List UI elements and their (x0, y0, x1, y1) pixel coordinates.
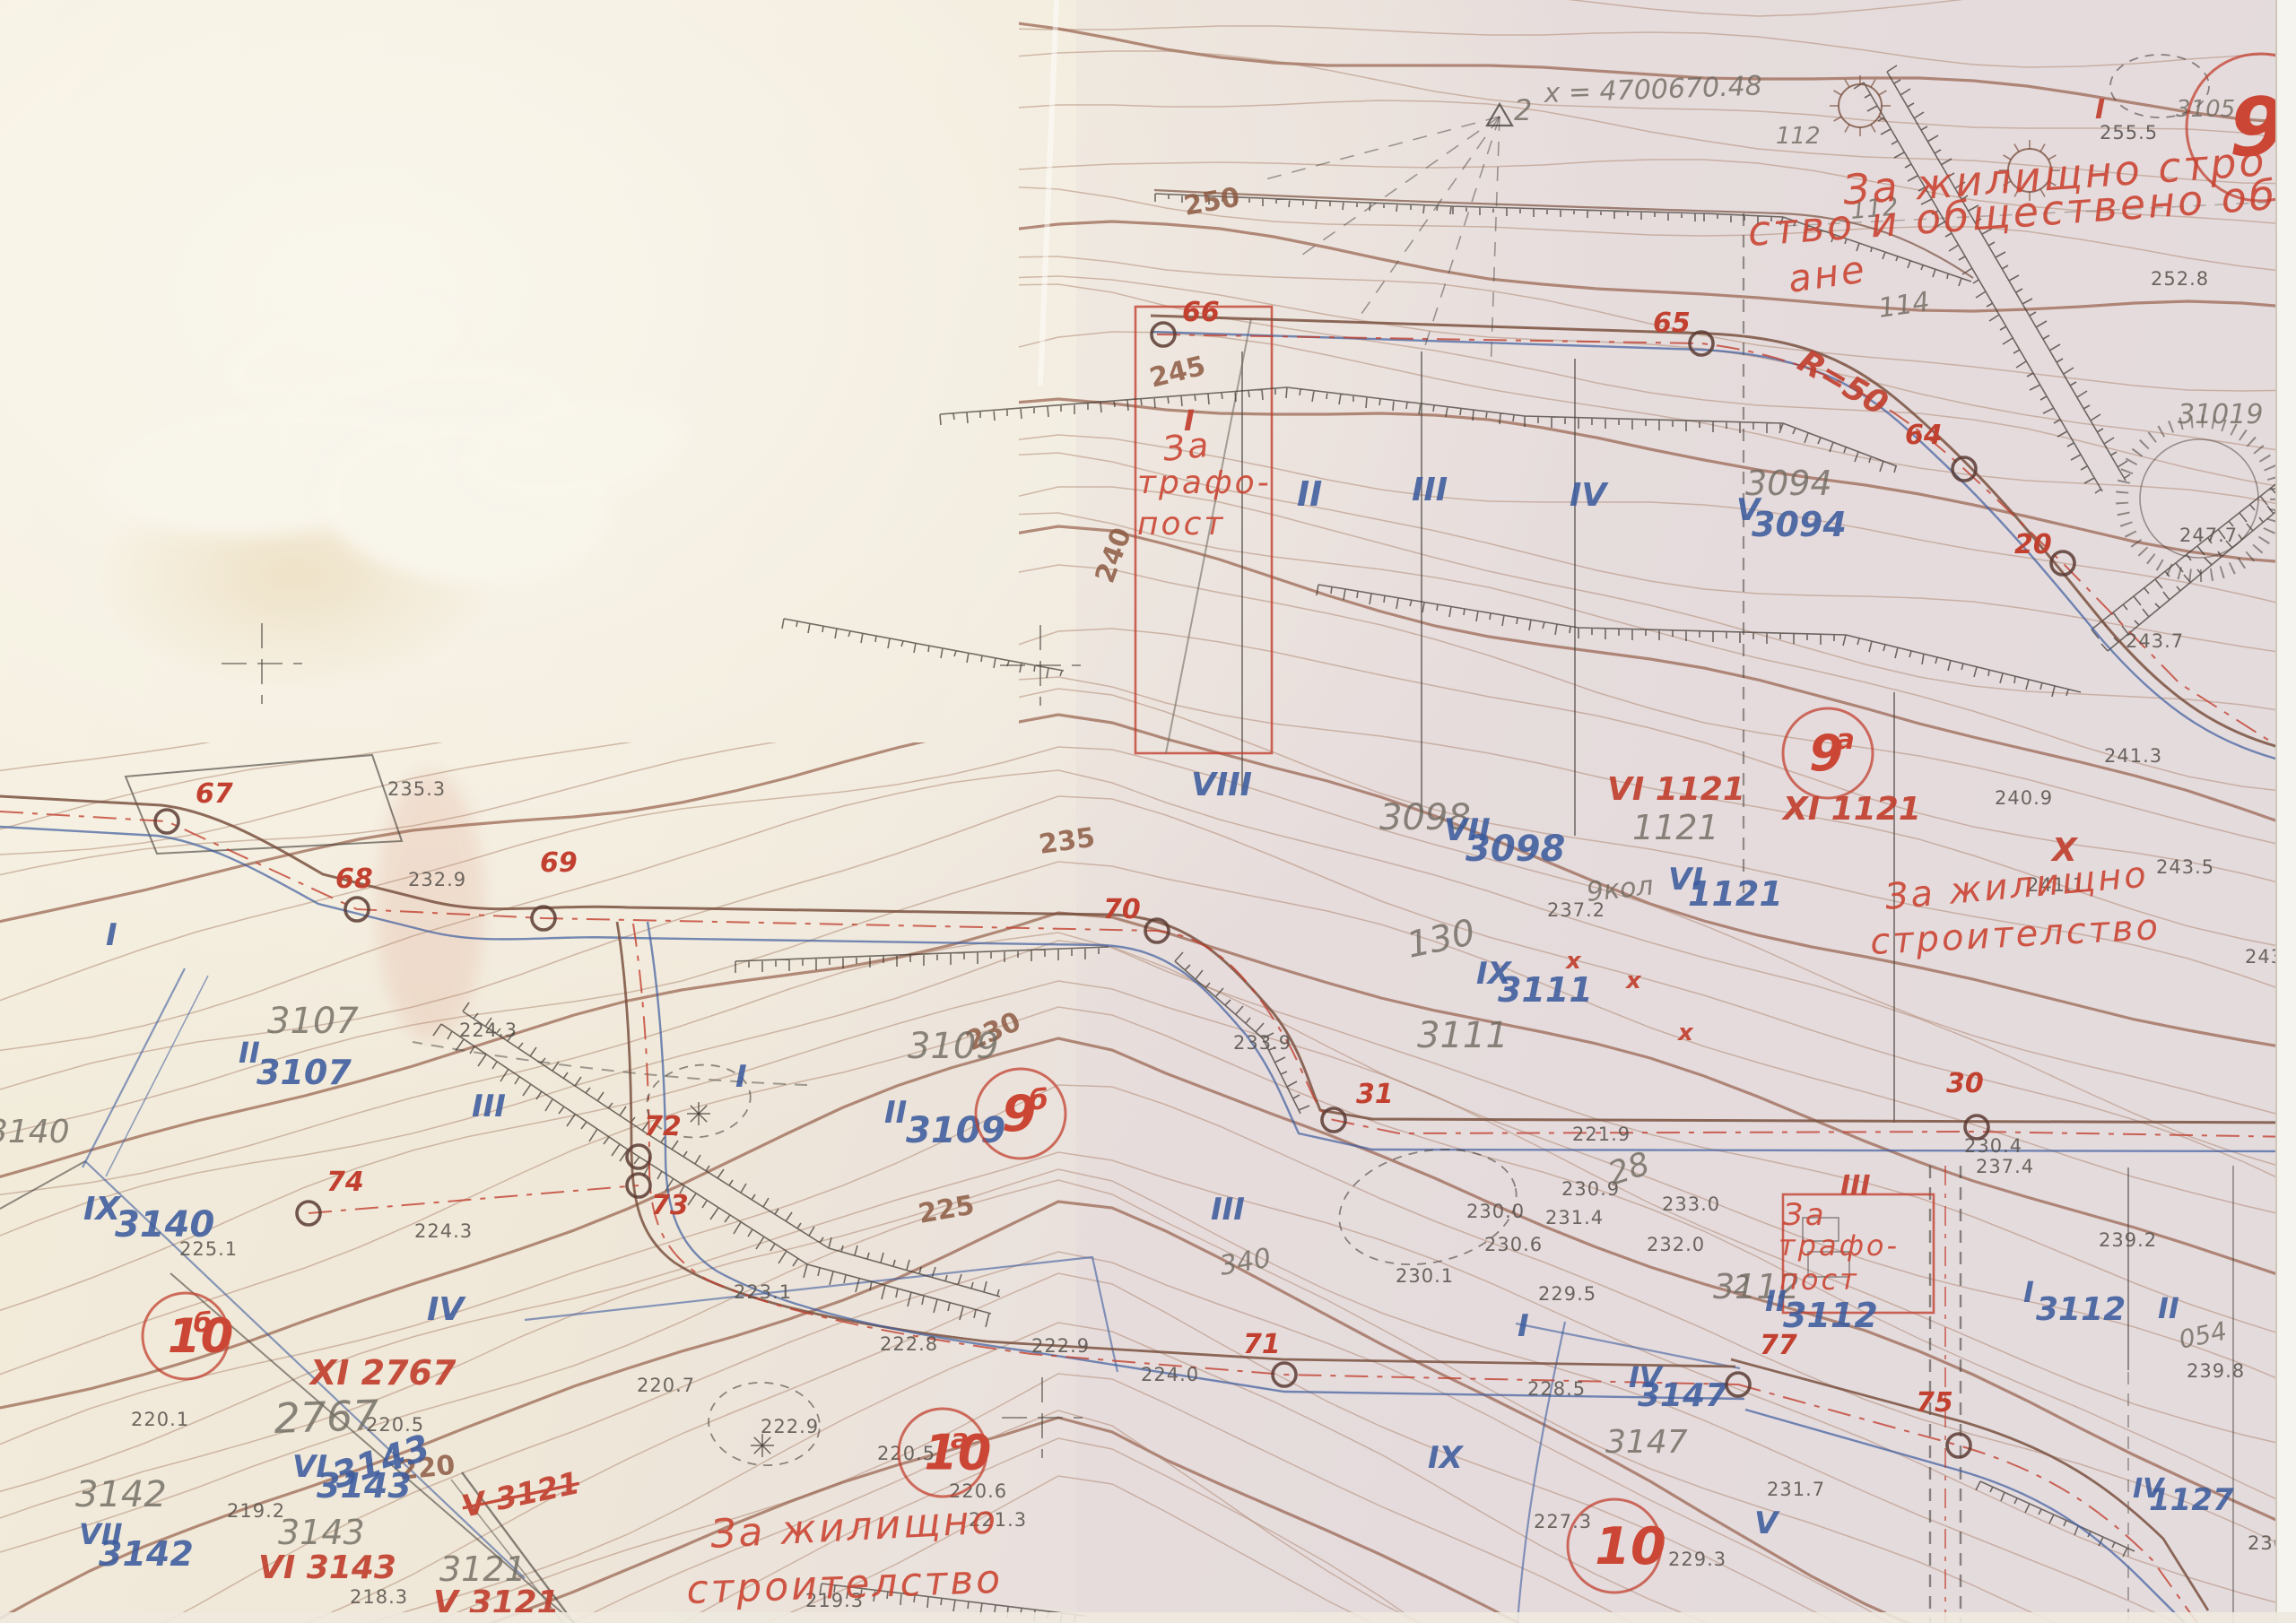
zone-number: 10 (1595, 1517, 1666, 1576)
red-annotation: VI 1121 (1607, 771, 1745, 808)
elevation-label: 235.3 (387, 778, 446, 800)
parcel-number-label: III (1412, 472, 1448, 508)
pencil-parcel-label: 3121 (439, 1549, 526, 1589)
zone-designation-text: трафо- (1137, 464, 1272, 501)
elevation-label: 220.7 (637, 1375, 695, 1396)
elevation-label: 222.8 (880, 1333, 938, 1355)
elevation-label: 224.3 (459, 1020, 517, 1041)
elevation-label: 255.5 (2100, 122, 2158, 143)
pencil-parcel-label: 3140 (0, 1114, 70, 1150)
parcel-number-label: 3111 (1498, 970, 1593, 1010)
survey-point-number: 71 (1243, 1329, 1281, 1360)
parcel-number-label: 3147 (1638, 1377, 1727, 1414)
red-annotation: x (1624, 968, 1642, 994)
parcel-number-label: IX (1428, 1440, 1465, 1476)
survey-point-number: 30 (1946, 1068, 1984, 1099)
parcel-number-label: 3112 (2036, 1291, 2126, 1328)
survey-point-number: 72 (644, 1111, 682, 1142)
zone-designation-text: За (1161, 425, 1213, 469)
red-annotation: XI 1121 (1781, 791, 1921, 828)
elevation-label: 241.3 (2104, 745, 2162, 767)
zone-designation-text: пост (1779, 1263, 1859, 1297)
red-annotation: x (1676, 1020, 1694, 1046)
elevation-label: 222.9 (761, 1416, 819, 1437)
parcel-number-label: 3140 (115, 1204, 214, 1245)
parcel-number-label: 3098 (1465, 829, 1565, 870)
elevation-label: 224.3 (414, 1220, 473, 1242)
parcel-number-label: IV (427, 1291, 466, 1328)
elevation-label: 237.4 (1976, 1156, 2034, 1177)
zone-letter: б (1029, 1084, 1048, 1116)
elevation-label: 219.2 (227, 1500, 285, 1522)
pencil-parcel-label: 112 (1776, 123, 1821, 150)
parcel-number-label: 1127 (2149, 1482, 2234, 1518)
parcel-number-label: VIII (1191, 767, 1252, 803)
pencil-parcel-label: 2767 (273, 1391, 379, 1443)
elevation-label: 230.0 (1466, 1201, 1525, 1222)
parcel-number-label: I (106, 917, 117, 953)
pencil-parcel-label: 3147 (1605, 1424, 1688, 1461)
pencil-parcel-label: 3143 (278, 1513, 365, 1552)
elevation-label: 252.8 (2151, 268, 2209, 290)
parcel-number-label: I (1518, 1308, 1529, 1344)
survey-point-number: 66 (1182, 297, 1220, 328)
pencil-parcel-label: 3111 (1417, 1015, 1509, 1056)
shrub-symbol (687, 1102, 710, 1125)
paper-edge-right (2276, 0, 2296, 1623)
elevation-label: 239.2 (2099, 1229, 2157, 1251)
parcel-number-label: 3142 (99, 1534, 194, 1574)
pencil-parcel-label: 1121 (1632, 808, 1719, 847)
pencil-parcel-label: 3105 (2176, 96, 2235, 123)
survey-point-number: 70 (1103, 894, 1141, 925)
zone-letter: б (194, 1307, 213, 1339)
parcel-number-label: 3109 (906, 1110, 1005, 1151)
elevation-label: 231.4 (1545, 1207, 1604, 1228)
pencil-parcel-label: 2 (1734, 1270, 1750, 1299)
survey-point-number: 73 (651, 1190, 689, 1221)
parcel-number-label: 3112 (1783, 1296, 1878, 1335)
survey-point-number: 77 (1760, 1330, 1797, 1361)
ink-smear (377, 771, 484, 1040)
scanned-cadastral-map: 235.3232.9224.3224.3225.1220.1220.5219.2… (0, 0, 2296, 1623)
red-annotation: I (2095, 94, 2105, 126)
paper-edge-bottom (0, 1612, 2296, 1623)
pencil-parcel-label: 3142 (75, 1474, 167, 1515)
red-annotation: x (1564, 948, 1582, 975)
zone-designation-text: пост (1137, 506, 1225, 542)
red-annotation: III (1840, 1170, 1871, 1202)
elevation-label: 218.3 (350, 1586, 408, 1608)
pencil-parcel-label: 2 (1514, 93, 1532, 127)
red-annotation: VI 3143 (258, 1549, 396, 1586)
elevation-label: 243.5 (2156, 856, 2214, 878)
pencil-parcel-label: 31019 (2178, 399, 2263, 430)
parcel-number-label: III (472, 1089, 506, 1124)
zone-designation-text: трафо- (1779, 1228, 1900, 1263)
elevation-label: 240.9 (1995, 787, 2053, 809)
red-annotation: XI 2767 (309, 1353, 457, 1393)
pencil-parcel-label: 3107 (267, 1001, 359, 1042)
elevation-label: 222.9 (1031, 1335, 1090, 1357)
elevation-label: 247.7 (2179, 525, 2238, 546)
elevation-label: 224.0 (1141, 1364, 1199, 1385)
elevation-label: 230.1 (1396, 1265, 1454, 1287)
survey-point-number: 75 (1916, 1387, 1953, 1419)
parcel-number-label: I (2023, 1275, 2034, 1309)
parcel-number-label: IV (1570, 477, 1609, 514)
elevation-label: 227.3 (1534, 1511, 1592, 1532)
zone-designation-text: За (1783, 1197, 1827, 1233)
elevation-label: 232.9 (408, 869, 466, 890)
elevation-label: 229.5 (1538, 1283, 1596, 1305)
elevation-label: 243.7 (2126, 630, 2184, 652)
parcel-number-label: 3107 (257, 1053, 352, 1092)
map-svg: 235.3232.9224.3224.3225.1220.1220.5219.2… (0, 0, 2296, 1623)
parcel-number-label: II (884, 1095, 907, 1131)
parcel-number-label: V (1754, 1506, 1780, 1541)
elevation-label: 223.1 (734, 1281, 792, 1303)
elevation-label: 229.3 (1668, 1549, 1726, 1570)
survey-point-number: 31 (1356, 1079, 1394, 1110)
elevation-label: 228.5 (1527, 1378, 1586, 1400)
elevation-label: 230.6 (1484, 1234, 1543, 1255)
zone-letter: а (1836, 724, 1855, 756)
elevation-label: 231.7 (1767, 1479, 1825, 1500)
elevation-label: 233.0 (1662, 1193, 1720, 1215)
survey-point-number: 68 (335, 864, 373, 895)
pencil-parcel-label: 3109 (908, 1026, 999, 1067)
parcel-number-label: I (735, 1059, 747, 1095)
parcel-number-label: III (1211, 1192, 1245, 1228)
elevation-label: 233.9 (1233, 1032, 1291, 1054)
survey-point-number: 64 (1905, 420, 1943, 451)
elevation-label: 220.1 (131, 1409, 189, 1430)
elevation-label: 239.8 (2187, 1360, 2245, 1382)
survey-point-number: 74 (326, 1167, 364, 1198)
survey-point-number: 69 (540, 847, 578, 879)
elevation-label: 221.9 (1572, 1124, 1631, 1145)
parcel-number-label: II (2158, 1291, 2179, 1325)
parcel-number-label: 1121 (1688, 874, 1783, 914)
survey-point-number: 65 (1653, 308, 1691, 339)
parcel-number-label: 3094 (1752, 505, 1847, 544)
survey-point-number: 20 (2014, 529, 2052, 560)
elevation-label: 232.0 (1647, 1234, 1705, 1255)
survey-point-number: 67 (196, 778, 233, 810)
zone-letter: а (951, 1424, 970, 1455)
parcel-number-label: II (1297, 474, 1322, 514)
